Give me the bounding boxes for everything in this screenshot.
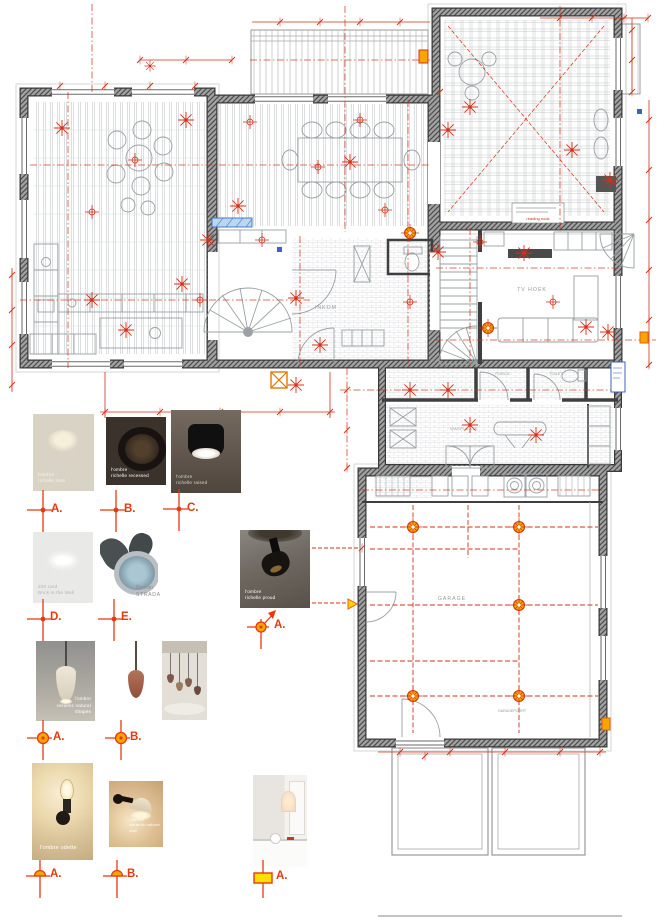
table: [164, 703, 205, 715]
marker-letter: A.: [276, 870, 288, 882]
deck-marker: [419, 50, 428, 63]
legend-photo-ceramic-pendant: l'ombre ceramic natural shapes: [36, 641, 95, 721]
marker-letter: E.: [121, 611, 132, 623]
marker-letter: C.: [187, 502, 199, 514]
recessed-glow: [47, 430, 79, 452]
recessed-ring: [118, 427, 166, 471]
legend-photo-charlize-cluster: [162, 641, 207, 720]
lighting-plan-sheet: INKOM TV HOEK PORCH. TOILET WASPLAATS GA…: [0, 0, 664, 920]
room-label-inkom: INKOM: [315, 305, 337, 311]
caption-line: richelle recessed: [111, 473, 149, 479]
legend-photo-brick-in-the-wall: 200 card Brick in the Wall: [33, 532, 93, 603]
x-box-marker: [271, 372, 287, 388]
cluster-cord: [179, 653, 180, 683]
caption-line: richelle proud: [245, 595, 275, 601]
caption-line: ceramic naturel: [130, 822, 160, 827]
legend-photo-ceramic-wall: l'ombre ceramic naturel wall: [109, 781, 163, 847]
marker-letter: B.: [124, 503, 136, 515]
cluster-drop: [167, 674, 174, 683]
ceiling-band: [162, 641, 207, 653]
caption-line: richelle zero: [38, 478, 65, 484]
room-label-porch: PORCH.: [495, 371, 510, 376]
legend-photo-richelle-raised: l'ombre richelle raised: [171, 410, 241, 493]
marker-letter: A.: [50, 868, 62, 880]
blue-annotation-box: [611, 362, 625, 392]
cluster-cord: [197, 653, 198, 687]
kettle: [270, 833, 281, 844]
caption-line: wall: [130, 828, 160, 833]
caption-line: ceramic natural: [57, 703, 91, 709]
marker-letter: A.: [51, 503, 63, 515]
caption-line: STRADA: [136, 592, 161, 599]
room-label-toilet: TOILET: [549, 371, 563, 376]
spot-head: [259, 548, 294, 581]
floor-plan: INKOM TV HOEK PORCH. TOILET WASPLAATS GA…: [0, 0, 664, 920]
cluster-cord: [188, 653, 189, 679]
cluster-drop: [185, 678, 192, 687]
pendant-cord: [135, 641, 137, 671]
wall-recessed-glow: [50, 554, 76, 567]
caption-line: l'ombre odette: [40, 845, 77, 852]
cluster-drop: [176, 682, 183, 691]
caption-line: Bertran: [136, 585, 161, 592]
marker-letter: B.: [127, 868, 139, 880]
fixture-glow: [192, 448, 220, 459]
room-label-garagepoort: GARAGEPOORT: [498, 709, 527, 713]
marker-letter: A.: [274, 619, 286, 631]
odette-bulb: [60, 779, 74, 801]
strada-caption: Bertran STRADA: [136, 585, 161, 600]
terrace-outline: [378, 748, 622, 916]
cluster-drop: [194, 686, 201, 695]
legend-photo-richelle-zero: l'ombre richelle zero: [33, 414, 94, 491]
note-reading-nook: reading nook: [526, 216, 549, 221]
red-item: [287, 837, 294, 840]
cluster-cord: [170, 653, 171, 675]
marker-letter: B.: [130, 731, 142, 743]
marker-letter: D.: [50, 611, 62, 623]
room-label-tvhoek: TV HOEK: [517, 287, 547, 293]
niche-light: [281, 791, 296, 812]
legend-photo-richelle-recessed: l'ombre richelle recessed: [106, 417, 166, 485]
garage-door-marker: [348, 599, 357, 609]
room-label-wasplaats: WASPLAATS: [450, 426, 478, 431]
legend-photo-charlize-pendant: l'ombre charlize: [111, 641, 162, 720]
caption-line: l'ombre: [115, 702, 132, 708]
legend-photo-richelle-proud: l'ombre richelle proud: [240, 530, 310, 608]
marker-letter: A.: [53, 731, 65, 743]
odette-base: [56, 811, 70, 825]
room-label-garage: GARAGE: [438, 596, 466, 602]
pendant-cord: [65, 641, 67, 667]
pendant-shade-amber: [128, 670, 144, 698]
legend-photo-odette: l'ombre odette: [32, 763, 93, 860]
